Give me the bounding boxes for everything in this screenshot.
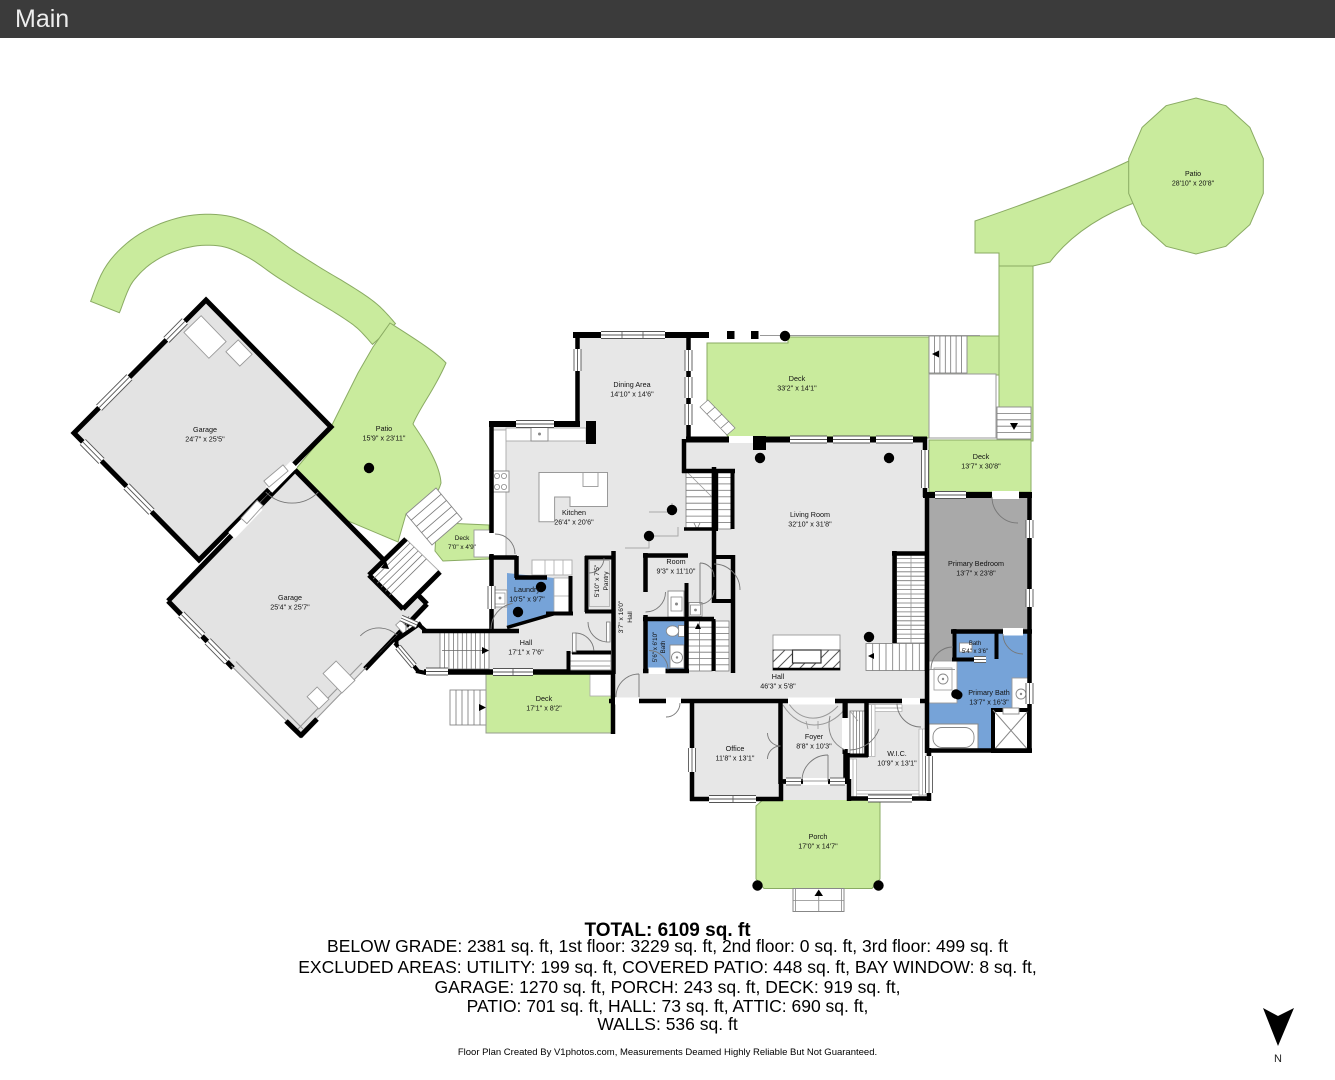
svg-text:26'4" x 20'6": 26'4" x 20'6" <box>554 518 594 527</box>
svg-text:W.I.C.: W.I.C. <box>887 749 907 758</box>
svg-text:11'8" x 13'1": 11'8" x 13'1" <box>716 754 755 763</box>
svg-text:Dining Area: Dining Area <box>613 380 650 389</box>
svg-text:Garage: Garage <box>278 593 302 602</box>
svg-text:14'10" x 14'6": 14'10" x 14'6" <box>610 390 654 399</box>
svg-text:Deck: Deck <box>536 694 553 703</box>
svg-text:13'7" x 16'3": 13'7" x 16'3" <box>969 698 1009 707</box>
svg-text:Primary Bedroom: Primary Bedroom <box>948 559 1004 568</box>
svg-text:17'1" x 8'2": 17'1" x 8'2" <box>526 704 562 713</box>
svg-text:Pantry: Pantry <box>603 571 610 591</box>
svg-text:Living Room: Living Room <box>790 510 830 519</box>
svg-text:8'8" x 10'3": 8'8" x 10'3" <box>796 742 832 751</box>
svg-text:17'1" x 7'6": 17'1" x 7'6" <box>508 648 544 657</box>
svg-text:13'7" x 30'8": 13'7" x 30'8" <box>961 462 1001 471</box>
svg-text:13'7" x 23'8": 13'7" x 23'8" <box>956 569 996 578</box>
svg-text:5'6" x 6'10": 5'6" x 6'10" <box>652 632 659 663</box>
svg-text:25'4" x 25'7": 25'4" x 25'7" <box>270 603 310 612</box>
svg-text:17'0" x 14'7": 17'0" x 14'7" <box>798 842 838 851</box>
svg-text:10'9" x 13'1": 10'9" x 13'1" <box>877 759 917 768</box>
svg-text:Garage: Garage <box>193 425 217 434</box>
svg-text:Hall: Hall <box>627 611 634 623</box>
svg-text:28'10" x 20'8": 28'10" x 20'8" <box>1172 181 1215 188</box>
svg-text:5'4" x 3'6": 5'4" x 3'6" <box>962 649 988 655</box>
svg-text:Hall: Hall <box>772 672 785 681</box>
svg-text:Office: Office <box>726 744 745 753</box>
svg-text:46'3" x 5'8": 46'3" x 5'8" <box>760 682 796 691</box>
svg-text:Room: Room <box>666 557 685 566</box>
svg-text:Hall: Hall <box>520 638 533 647</box>
svg-text:Porch: Porch <box>809 832 828 841</box>
svg-text:Foyer: Foyer <box>805 732 824 741</box>
svg-text:Bath: Bath <box>660 640 667 653</box>
svg-text:Bath: Bath <box>969 641 981 647</box>
svg-text:5'10" x 7'5": 5'10" x 7'5" <box>594 564 601 597</box>
svg-text:15'9" x 23'11": 15'9" x 23'11" <box>363 434 406 443</box>
svg-text:Deck: Deck <box>973 452 990 461</box>
svg-text:24'7" x 25'5": 24'7" x 25'5" <box>185 435 225 444</box>
svg-text:9'3" x 11'10": 9'3" x 11'10" <box>657 567 696 576</box>
svg-text:32'10" x 31'8": 32'10" x 31'8" <box>788 520 832 529</box>
svg-text:Patio: Patio <box>1185 171 1201 178</box>
svg-text:7'0" x 4'9": 7'0" x 4'9" <box>448 544 476 551</box>
svg-text:Patio: Patio <box>376 424 392 433</box>
svg-text:Deck: Deck <box>455 535 470 542</box>
svg-text:Primary Bath: Primary Bath <box>968 688 1010 697</box>
svg-text:33'2" x 14'1": 33'2" x 14'1" <box>777 384 817 393</box>
svg-text:3'7" x 16'0": 3'7" x 16'0" <box>618 600 625 633</box>
svg-text:10'5" x 9'7": 10'5" x 9'7" <box>509 595 545 604</box>
svg-text:Kitchen: Kitchen <box>562 508 586 517</box>
svg-text:Deck: Deck <box>789 374 806 383</box>
svg-text:Laundry: Laundry <box>514 585 540 594</box>
